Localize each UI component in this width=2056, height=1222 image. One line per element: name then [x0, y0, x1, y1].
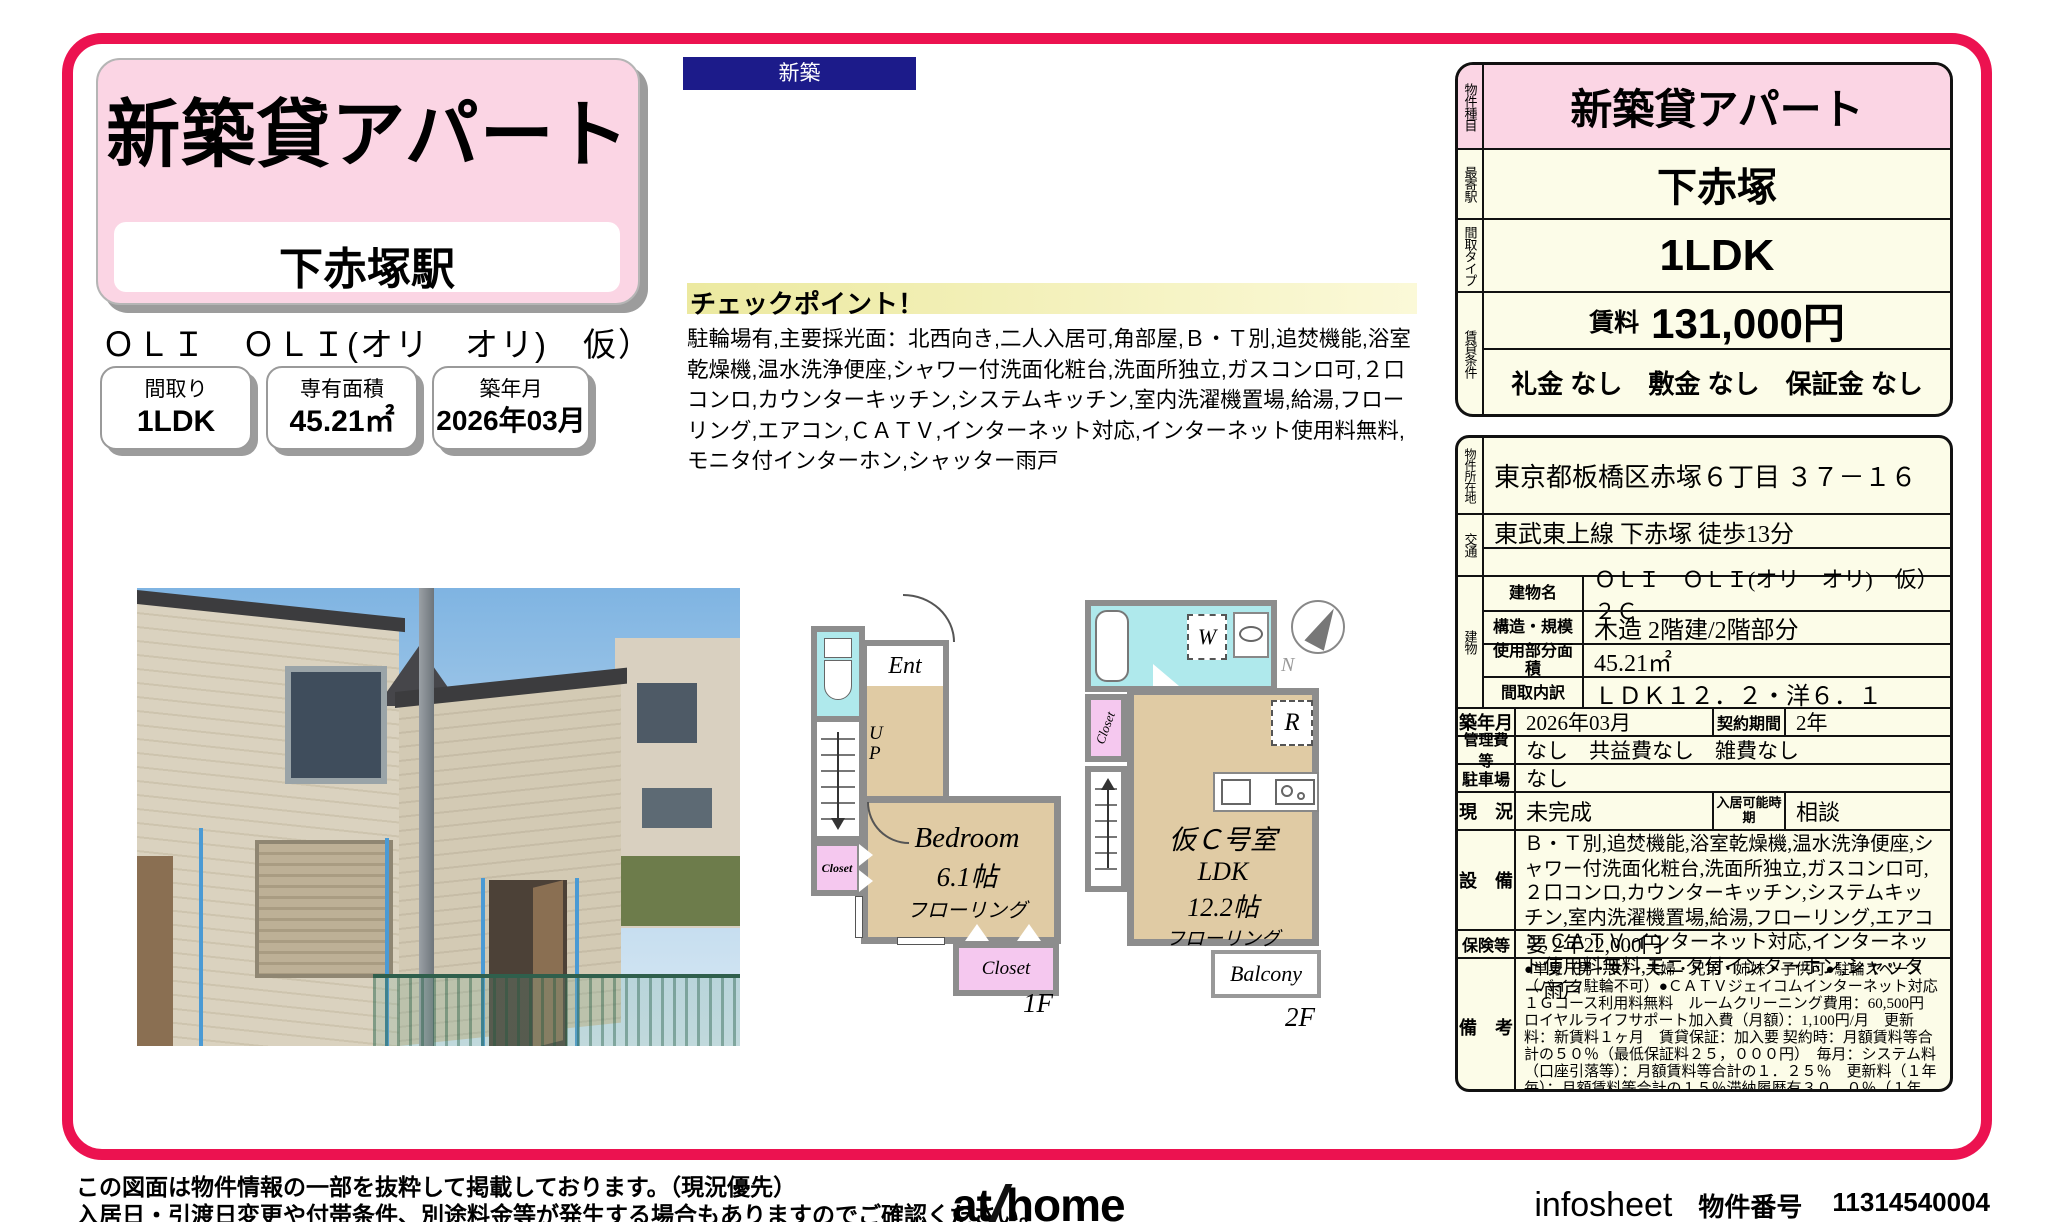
contract-value: 2年: [1786, 709, 1950, 735]
fp1-entry-door-arc: [903, 594, 955, 642]
fp1-closet-left: Closet: [811, 840, 863, 896]
floorplan-2f: W Closet DN R: [1085, 590, 1355, 1030]
fp1-up-label: UP: [869, 724, 883, 764]
fp1-entrance: Ent: [861, 640, 949, 692]
stairs-arrow-head: [1101, 778, 1115, 790]
photo-shutter-window: [255, 840, 393, 978]
fees-label: 管理費等: [1458, 737, 1516, 763]
fp2-room-floor: フローリング: [1127, 924, 1319, 951]
summary-table: 物件種目 新築貸アパート 最寄駅 下赤塚 間取タイプ 1LDK 賃貸条件 賃料 …: [1455, 62, 1953, 417]
notes-value: ●単身（男・女）・夫婦・兄弟・姉妹・子供可●駐輪スペース（バイク駐輪不可）●ＣＡ…: [1516, 959, 1950, 1092]
summary-terms-label: 賃貸条件: [1458, 293, 1484, 414]
fp2-floor-label: 2F: [1285, 1002, 1315, 1033]
fp1-window-mark: [855, 896, 863, 938]
photo-upper-window: [285, 666, 387, 784]
summary-station-value: 下赤塚: [1484, 150, 1950, 218]
insurance-label: 保険等: [1458, 931, 1516, 957]
deposits-value: 礼金 なし 敷金 なし 保証金 なし: [1484, 348, 1950, 414]
checkpoint-body: 駐輪場有,主要採光面：北西向き,二人入居可,角部屋,Ｂ・Ｔ別,追焚機能,浴室乾燥…: [687, 324, 1421, 477]
fp2-closet-label: Closet: [1093, 710, 1119, 747]
property-photo: [137, 588, 740, 1046]
status-label: 現 況: [1458, 793, 1516, 829]
stove-icon: [1275, 779, 1315, 805]
used-area-label: 使用部分面積: [1484, 645, 1584, 676]
stairs-arrow-line: [1107, 788, 1109, 868]
summary-layout-label: 間取タイプ: [1458, 220, 1484, 291]
fp2-room-labels: 仮Ｃ号室 LDK 12.2帖 フローリング: [1127, 818, 1319, 951]
summary-type-label: 物件種目: [1458, 65, 1484, 148]
fp1-ent-label: Ent: [888, 653, 921, 680]
detail-table: 物件所在地 東京都板橋区赤塚６丁目 ３７－１６ 交通 東武東上線 下赤塚 徒歩1…: [1455, 435, 1953, 1092]
compass-needle: [1304, 603, 1343, 650]
parking-value: なし: [1516, 765, 1950, 791]
bathtub-icon: [1095, 610, 1129, 682]
compass-icon: [1291, 600, 1345, 654]
property-number: 物件番号 11314540004: [1698, 1187, 1990, 1222]
building-name-value: ＯＬＩ ＯＬＩ(オリ オリ) 仮）２Ｃ: [1584, 577, 1950, 610]
parking-label: 駐車場: [1458, 765, 1516, 791]
photo-mesh-fence: [373, 974, 740, 1046]
photo-blue-tape: [199, 828, 203, 1046]
notes-label: 備 考: [1458, 959, 1516, 1092]
washer-space-icon: W: [1187, 614, 1227, 660]
stat-layout-value: 1LDK: [102, 402, 250, 443]
fp2-stairs: [1085, 766, 1127, 892]
station-name: 下赤塚駅: [114, 233, 620, 297]
fp2-room-type: LDK: [1127, 857, 1319, 887]
infosheet-word: infosheet: [1534, 1186, 1672, 1222]
fp2-balcony: Balcony: [1211, 950, 1321, 998]
fp1-room-name: Bedroom: [897, 822, 1037, 855]
fp2-closet: Closet: [1085, 694, 1127, 762]
compass-n-label: N: [1281, 654, 1294, 677]
checkpoint-heading: チェックポイント！: [690, 284, 924, 321]
fp2-bathroom: W: [1085, 600, 1277, 692]
fp1-toilet-room: [811, 626, 865, 722]
layout-detail-label: 間取内訳: [1484, 678, 1584, 709]
disclaimer-line2: 入居日・引渡日変更や付帯条件、別途料金等が発生する場合もありますのでご確認くださ…: [76, 1196, 1042, 1222]
fp1-room-floor: フローリング: [897, 894, 1037, 923]
infosheet-page: 新築貸アパート 下赤塚駅 ＯＬＩ ＯＬＩ(オリ オリ) 仮）２Ｃ 間取り 1LD…: [0, 0, 2056, 1222]
photo-hedge: [607, 856, 740, 926]
new-build-badge: 新築: [683, 57, 916, 90]
property-number-label: 物件番号: [1698, 1187, 1802, 1222]
stat-area-label: 専有面積: [268, 377, 416, 402]
fp2-door-triangle: [1153, 664, 1179, 686]
fp2-room-name: 仮Ｃ号室: [1127, 818, 1319, 857]
location-label: 物件所在地: [1458, 438, 1484, 513]
burner-icon: [1297, 792, 1305, 800]
photo-left-door: [137, 856, 173, 1046]
stairs-arrow-head: [831, 818, 845, 830]
location-value: 東京都板橋区赤塚６丁目 ３７－１６: [1484, 438, 1950, 513]
toilet-bowl-icon: [824, 660, 852, 700]
status-value: 未完成: [1516, 793, 1714, 829]
fees-value: なし 共益費なし 雑費なし: [1516, 737, 1950, 763]
athome-logo-home: home: [1006, 1178, 1125, 1222]
used-area-value: 45.21㎡: [1584, 645, 1950, 676]
building-label: 建物: [1458, 577, 1484, 707]
kitchen-counter-icon: [1213, 772, 1319, 812]
fp2-balcony-label: Balcony: [1230, 961, 1302, 987]
fp1-bedroom-labels: Bedroom 6.1帖 フローリング: [897, 822, 1037, 923]
structure-value: 木造 2階建/2階部分: [1584, 612, 1950, 643]
rent-value: 131,000円: [1651, 290, 1845, 351]
floorplan-1f: Ent UP Closet Bedroom 6.1帖 フローリング Closet: [805, 590, 1085, 1020]
access-label: 交通: [1458, 515, 1484, 575]
athome-logo: at home: [952, 1178, 1125, 1222]
infosheet-footer: infosheet 物件番号 11314540004: [1534, 1186, 1990, 1222]
stat-layout: 間取り 1LDK: [100, 366, 252, 450]
page-title: 新築貸アパート: [96, 75, 640, 182]
stat-built-value: 2026年03月: [434, 402, 588, 440]
fp1-bifold-top-icon: [1017, 924, 1041, 941]
fp1-floor-label: 1F: [1023, 988, 1053, 1019]
fp1-closet-left-label: Closet: [822, 861, 853, 876]
fp2-room-size: 12.2帖: [1127, 887, 1319, 924]
fp2-w-label: W: [1198, 624, 1216, 650]
fridge-space-icon: R: [1271, 700, 1313, 746]
built-value: 2026年03月: [1516, 709, 1714, 735]
photo-neighbor-window: [637, 683, 697, 743]
structure-label: 構造・規模: [1484, 612, 1584, 643]
access-value: 東武東上線 下赤塚 徒歩13分: [1484, 515, 1950, 547]
sink-bowl-icon: [1239, 626, 1263, 642]
insurance-value: 要 2年22,000円: [1516, 931, 1950, 957]
fp1-window-mark: [897, 937, 945, 945]
contract-label: 契約期間: [1714, 709, 1786, 735]
movein-value: 相談: [1786, 793, 1950, 829]
fp1-bifold-icon: [859, 870, 873, 892]
fp1-room-size: 6.1帖: [897, 855, 1037, 894]
athome-logo-at: at: [952, 1178, 991, 1222]
movein-label: 入居可能時期: [1714, 793, 1786, 829]
toilet-icon: [824, 638, 852, 658]
burner-icon: [1281, 785, 1293, 797]
equipment-label: 設 備: [1458, 831, 1516, 929]
summary-layout-value: 1LDK: [1484, 220, 1950, 291]
fp1-bifold-top-icon: [965, 924, 989, 941]
stat-layout-label: 間取り: [102, 377, 250, 402]
rent-label: 賃料: [1589, 303, 1639, 339]
stat-area-value: 45.21㎡: [268, 402, 416, 443]
summary-station-label: 最寄駅: [1458, 150, 1484, 218]
sink-counter-icon: [1233, 612, 1269, 658]
photo-neighbor-window: [642, 788, 712, 828]
layout-detail-value: ＬＤＫ１２．２・洋６．１: [1584, 678, 1950, 709]
equipment-value: Ｂ・Ｔ別,追焚機能,浴室乾燥機,温水洗浄便座,シャワー付洗面化粧台,洗面所独立,…: [1516, 831, 1950, 929]
building-name-label: 建物名: [1484, 577, 1584, 610]
fp1-bifold-icon: [859, 844, 873, 866]
stat-area: 専有面積 45.21㎡: [266, 366, 418, 450]
stairs-arrow-line: [837, 732, 839, 820]
stat-built-label: 築年月: [434, 377, 588, 402]
fp2-r-label: R: [1284, 709, 1299, 737]
property-number-value: 11314540004: [1832, 1187, 1990, 1222]
summary-type-value: 新築貸アパート: [1484, 65, 1950, 148]
stat-built: 築年月 2026年03月: [432, 366, 590, 450]
fp1-stairs: [811, 716, 865, 842]
kitchen-sink-icon: [1221, 779, 1251, 805]
fp1-closet-bottom-label: Closet: [982, 958, 1031, 980]
